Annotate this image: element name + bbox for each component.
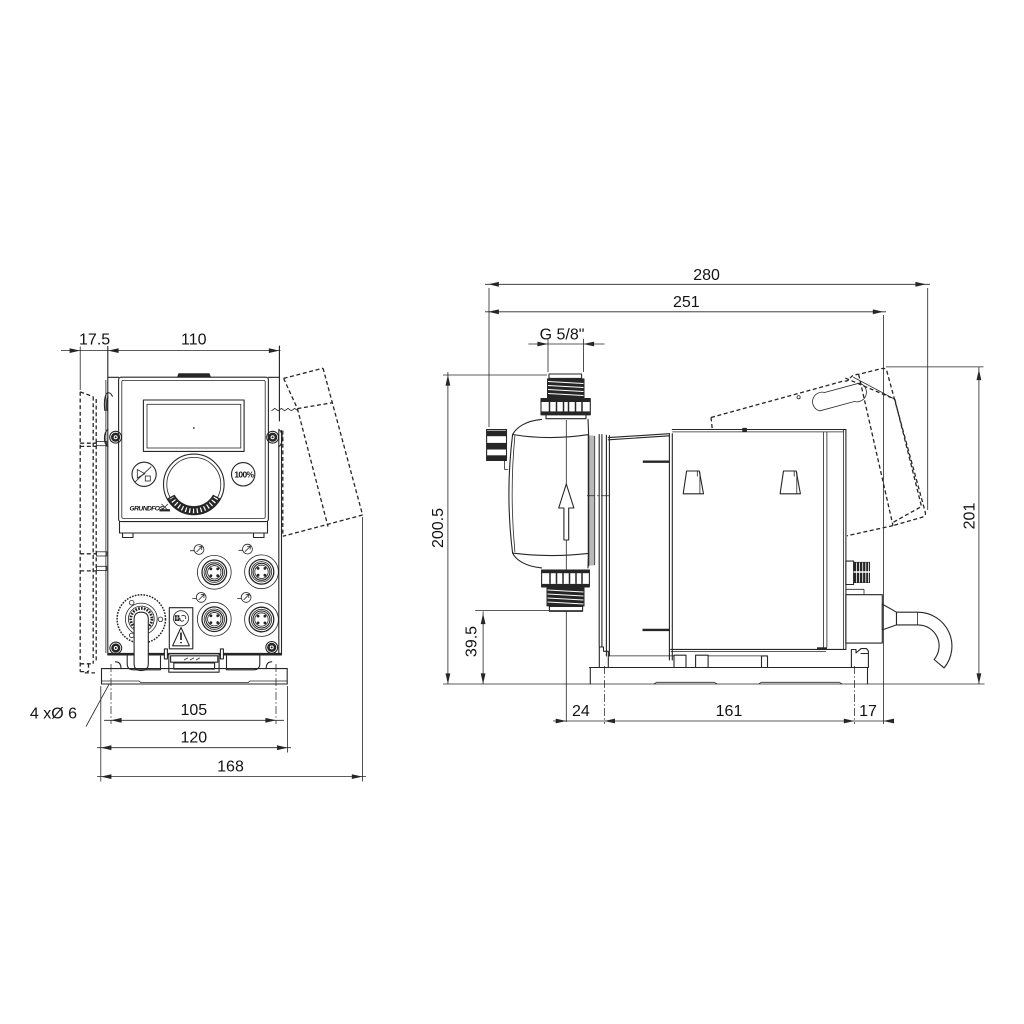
svg-text:168: 168 — [217, 758, 244, 775]
svg-text:120: 120 — [180, 729, 207, 746]
svg-text:39.5: 39.5 — [464, 626, 481, 657]
svg-text:201: 201 — [962, 503, 979, 530]
svg-text:100%: 100% — [234, 469, 254, 479]
svg-text:17.5: 17.5 — [79, 332, 110, 349]
svg-text:GRUNDFOS: GRUNDFOS — [130, 506, 165, 513]
svg-text:110: 110 — [181, 332, 207, 349]
svg-text:200.5: 200.5 — [430, 508, 447, 548]
svg-text:17: 17 — [859, 703, 877, 720]
svg-text:105: 105 — [180, 702, 207, 719]
svg-text:280: 280 — [693, 267, 720, 284]
svg-text:24: 24 — [572, 703, 590, 720]
svg-text:4 xØ 6: 4 xØ 6 — [30, 706, 77, 723]
svg-text:161: 161 — [716, 703, 743, 720]
svg-text:251: 251 — [673, 294, 700, 311]
svg-text:G 5/8": G 5/8" — [540, 327, 585, 344]
